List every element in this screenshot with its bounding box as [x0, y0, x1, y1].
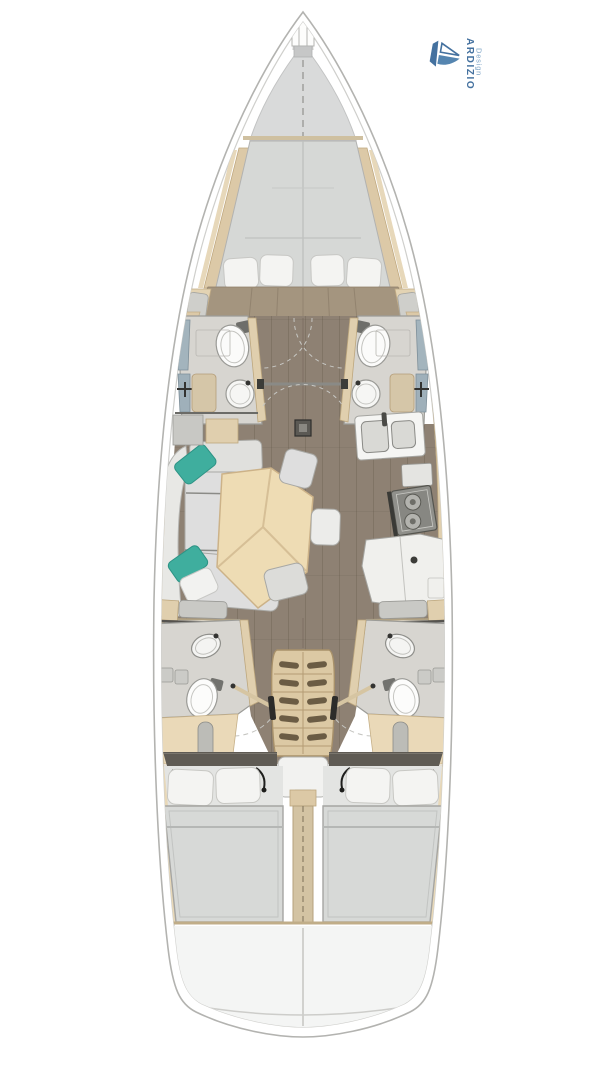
brand-logo: ARDIZIO Design: [427, 36, 483, 90]
forward-cabin: [178, 141, 428, 331]
shower-seat: [192, 374, 216, 412]
floor-plan-drawing: [0, 0, 607, 1080]
chair: [310, 509, 340, 546]
brand-subtitle: Design: [475, 48, 483, 90]
counter-fitting: [411, 557, 418, 564]
galley-lower-counter: [362, 534, 451, 610]
galley-faucet: [381, 412, 387, 426]
sink-basin: [391, 420, 416, 449]
jib-sail: [440, 43, 460, 55]
double-berth-mattress: [164, 806, 283, 922]
yacht-floor-plan-page: ARDIZIO Design: [0, 0, 607, 1080]
pillow: [167, 769, 214, 806]
seacock-panel: [141, 692, 152, 756]
forward-bulkhead: [243, 136, 363, 140]
main-sail: [437, 55, 459, 68]
galley-locker: [401, 463, 432, 487]
aft-cabin-divider: [290, 790, 316, 922]
sailboat-logo-icon: [427, 36, 463, 76]
brand-name: ARDIZIO: [464, 38, 474, 90]
headboard-shelf: [163, 752, 277, 766]
stove: [387, 485, 437, 536]
aft-seat-cushion: [179, 600, 228, 619]
pillow: [215, 767, 260, 804]
anchor-locker-step: [294, 46, 312, 57]
galley-sink-unit: [354, 410, 425, 461]
sink-faucet: [246, 381, 251, 386]
stern-transom: [150, 923, 456, 1032]
sink-faucet: [214, 634, 219, 639]
